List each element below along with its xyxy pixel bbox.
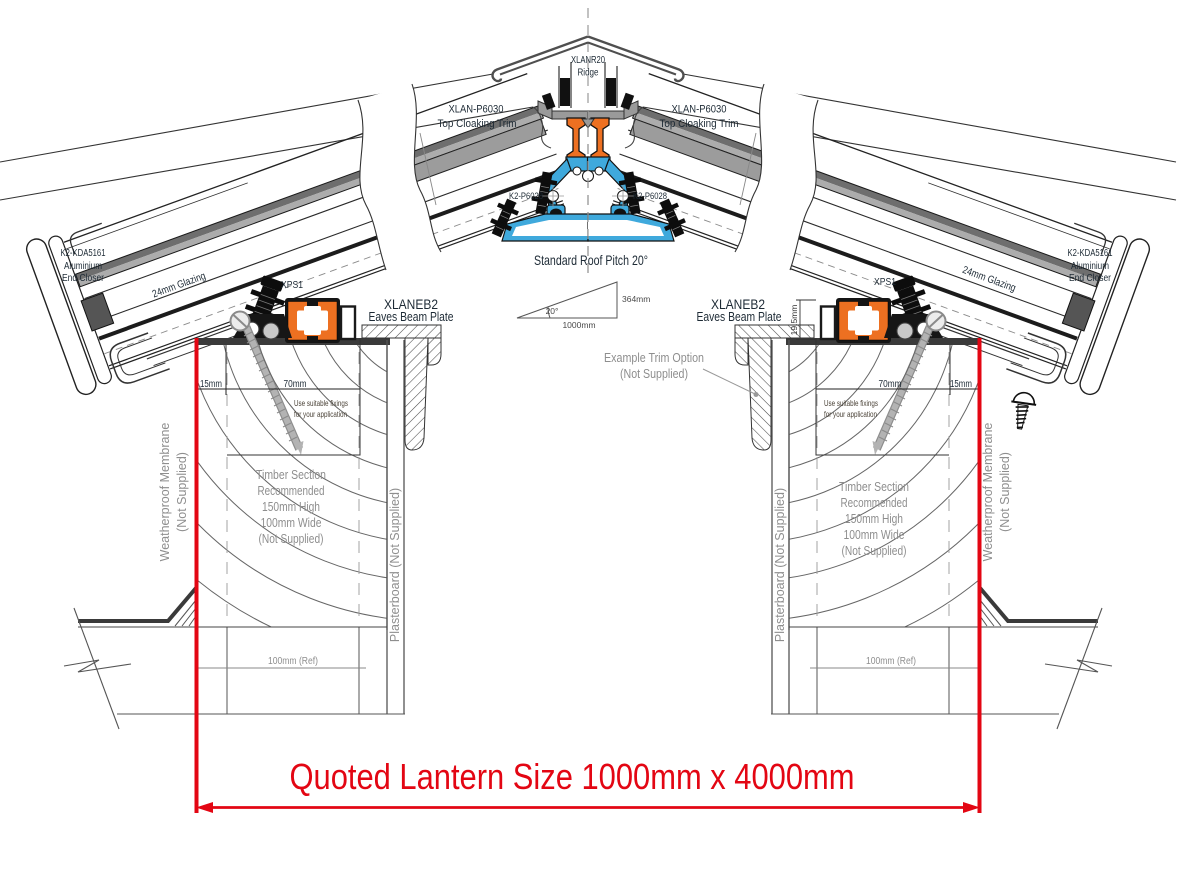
svg-text:100mm Wide: 100mm Wide [261,516,322,530]
svg-text:Example Trim Option: Example Trim Option [604,351,704,365]
svg-text:Top Cloaking Trim: Top Cloaking Trim [438,118,517,130]
svg-text:Recommended: Recommended [258,484,325,498]
svg-text:150mm High: 150mm High [262,500,320,514]
svg-text:K2-KDA5161: K2-KDA5161 [61,248,106,259]
svg-text:K2-P6028: K2-P6028 [633,191,667,202]
svg-text:(Not Supplied): (Not Supplied) [998,452,1012,532]
svg-text:End Closer: End Closer [1069,273,1112,284]
svg-text:Plasterboard (Not Supplied): Plasterboard (Not Supplied) [388,488,402,642]
svg-text:Timber Section: Timber Section [256,468,326,482]
svg-text:Aluminium: Aluminium [1071,261,1109,272]
svg-text:XLAN-P6030: XLAN-P6030 [449,104,504,116]
svg-text:Weatherproof Membrane: Weatherproof Membrane [158,423,172,562]
svg-text:19.5mm: 19.5mm [789,305,799,336]
svg-text:Ridge: Ridge [578,68,599,79]
svg-text:K2-KDA5161: K2-KDA5161 [1068,248,1113,259]
svg-text:Aluminium: Aluminium [64,261,102,272]
svg-text:XLAN-P6030: XLAN-P6030 [672,104,727,116]
svg-text:Timber Section: Timber Section [839,480,909,494]
svg-text:Recommended: Recommended [841,496,908,510]
svg-text:(Not Supplied): (Not Supplied) [175,452,189,532]
svg-text:XLANR20: XLANR20 [571,55,605,66]
svg-text:K2-P6028: K2-P6028 [509,191,543,202]
svg-text:Quoted Lantern Size 1000mm x 4: Quoted Lantern Size 1000mm x 4000mm [290,756,855,797]
svg-text:for your application: for your application [294,409,347,419]
svg-text:1000mm: 1000mm [562,320,595,330]
svg-text:XPS1: XPS1 [874,277,896,288]
svg-text:100mm (Ref): 100mm (Ref) [268,656,318,667]
svg-text:364mm: 364mm [622,294,650,304]
svg-text:100mm (Ref): 100mm (Ref) [866,656,916,667]
svg-text:70mm: 70mm [879,379,902,390]
svg-text:Standard Roof Pitch 20°: Standard Roof Pitch 20° [534,252,648,268]
svg-text:Eaves Beam Plate: Eaves Beam Plate [697,310,782,324]
svg-text:End Closer: End Closer [62,273,105,284]
svg-text:70mm: 70mm [284,379,307,390]
svg-text:20°: 20° [546,306,559,316]
svg-text:15mm: 15mm [200,379,222,390]
svg-text:Eaves Beam Plate: Eaves Beam Plate [369,310,454,324]
svg-text:Top Cloaking Trim: Top Cloaking Trim [660,118,739,130]
svg-text:Weatherproof Membrane: Weatherproof Membrane [981,423,995,562]
svg-text:100mm Wide: 100mm Wide [844,528,905,542]
svg-text:150mm High: 150mm High [845,512,903,526]
svg-text:Plasterboard (Not Supplied): Plasterboard (Not Supplied) [773,488,787,642]
svg-text:Use suitable fixings: Use suitable fixings [294,398,348,408]
svg-text:XPS1: XPS1 [281,280,303,291]
svg-text:(Not Supplied): (Not Supplied) [259,532,324,546]
svg-text:for your application: for your application [824,409,877,419]
svg-text:(Not Supplied): (Not Supplied) [842,544,907,558]
svg-text:(Not Supplied): (Not Supplied) [620,367,688,381]
svg-text:15mm: 15mm [950,379,972,390]
svg-text:Use suitable fixings: Use suitable fixings [824,398,878,408]
